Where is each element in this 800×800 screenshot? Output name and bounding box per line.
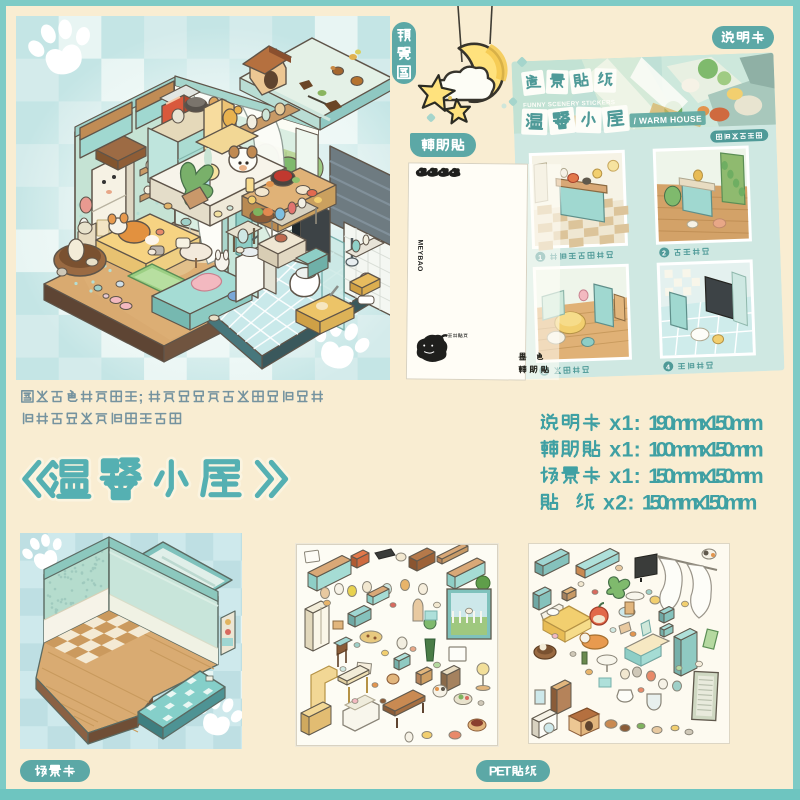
svg-text:PET: PET	[489, 764, 512, 779]
svg-text:x1:: x1:	[609, 464, 641, 488]
svg-text:x1:: x1:	[609, 438, 641, 462]
svg-text:MEYBAO: MEYBAO	[416, 239, 423, 271]
svg-text:190mmx150mm: 190mmx150mm	[648, 411, 764, 435]
svg-text:2: 2	[662, 250, 666, 257]
svg-text:;: ;	[138, 389, 143, 406]
svg-text:150mmx150mm: 150mmx150mm	[642, 491, 758, 515]
svg-text:150mmx150mm: 150mmx150mm	[648, 464, 764, 488]
svg-text:x2:: x2:	[603, 491, 635, 515]
svg-text:4: 4	[666, 364, 670, 371]
svg-text:100mmx150mm: 100mmx150mm	[648, 438, 764, 462]
svg-text:x1:: x1:	[609, 411, 641, 435]
